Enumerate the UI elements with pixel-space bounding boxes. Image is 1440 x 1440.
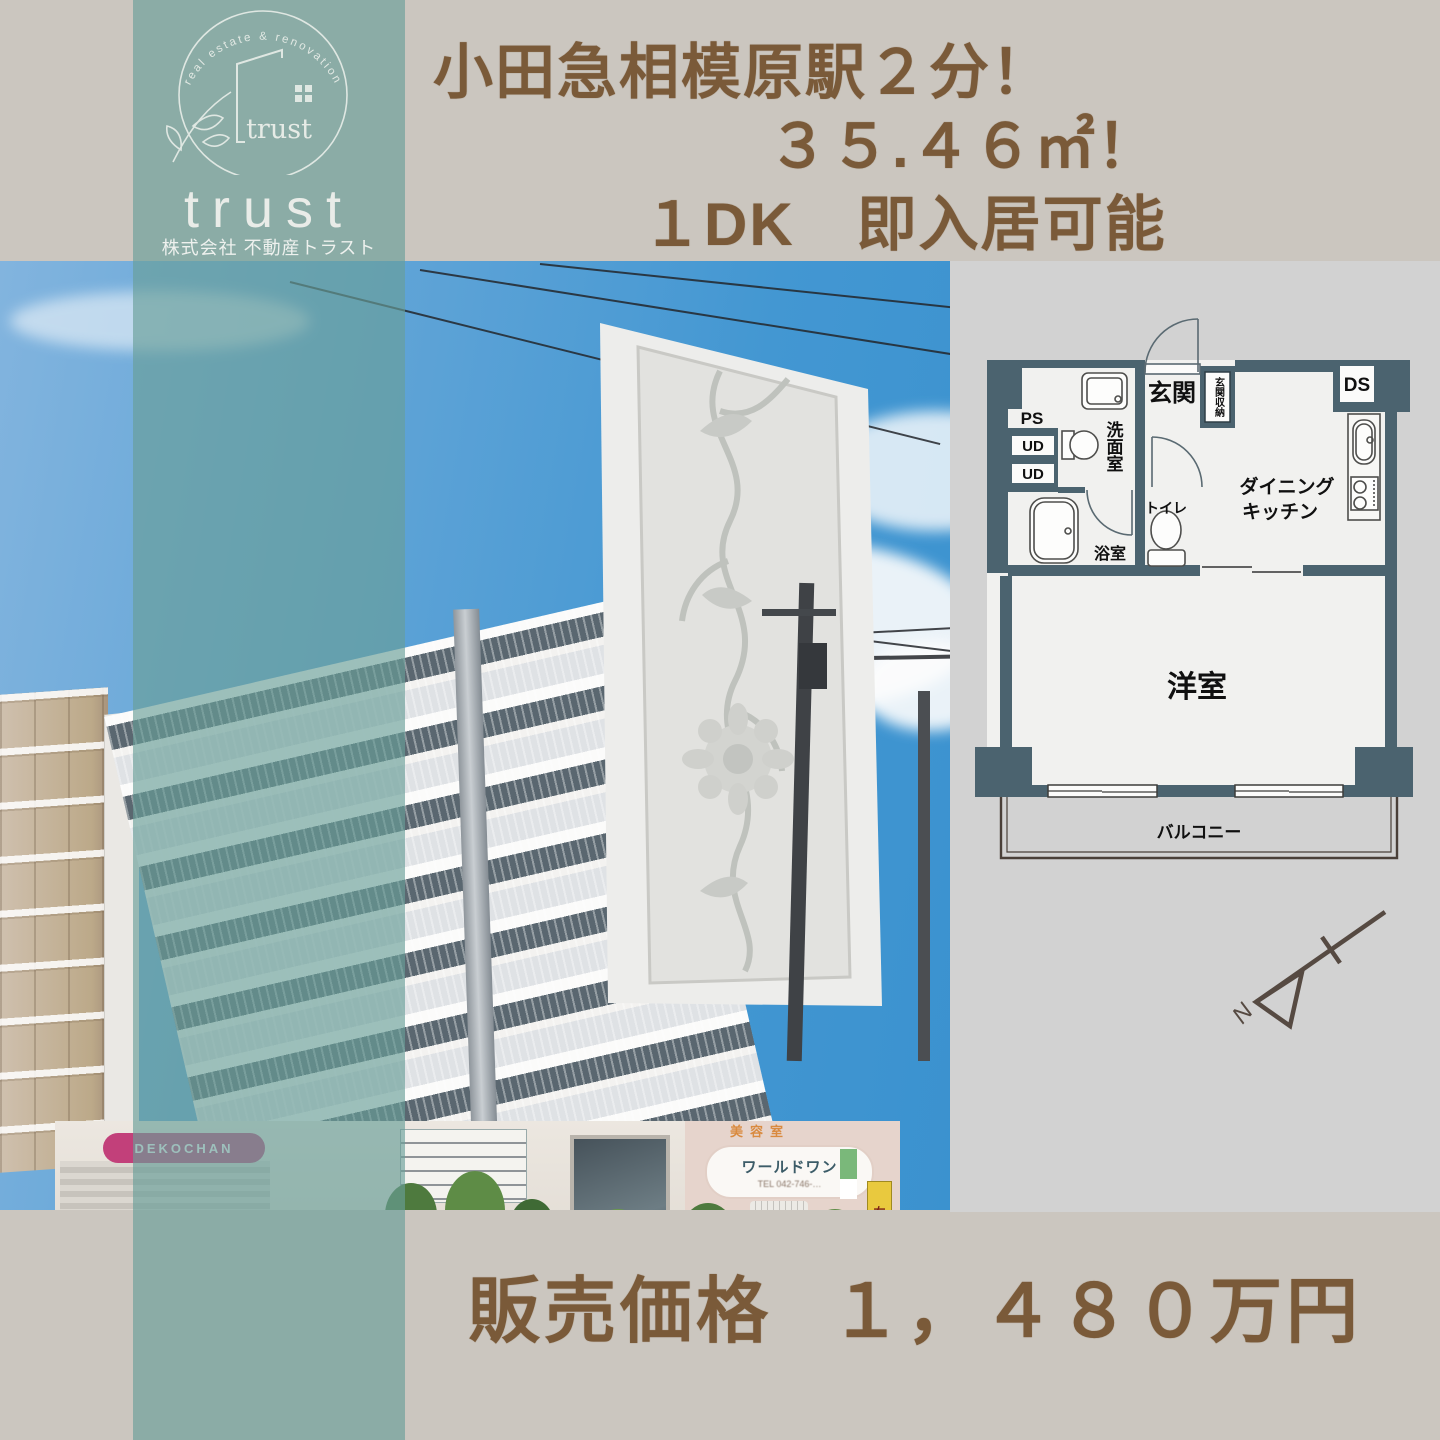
transformer-box xyxy=(799,643,827,689)
price-label: 販売価格 xyxy=(468,1252,772,1357)
ps-label: PS xyxy=(1021,409,1044,428)
bathroom-label: 浴室 xyxy=(1094,544,1126,563)
pole-crossarm xyxy=(762,609,836,616)
green-street-sign xyxy=(840,1149,857,1199)
floor-plan-panel: PS UD UD DS 玄関 玄関収納 洗面室 浴室 トイレ ダイニング キッチ… xyxy=(950,261,1440,1212)
logo-emblem-text: trust xyxy=(246,114,312,145)
leaf-branch-icon xyxy=(167,92,231,162)
washroom-label: 洗面室 xyxy=(1104,420,1124,472)
company-logo: real estate & renovation trust trust 株式会… xyxy=(133,0,405,261)
floor-plan: PS UD UD DS 玄関 玄関収納 洗面室 浴室 トイレ ダイニング キッチ… xyxy=(950,261,1440,1212)
western-room-label: 洋室 xyxy=(1167,670,1227,704)
genkan-storage-label: 玄関収納 xyxy=(1213,376,1225,418)
utility-pole xyxy=(918,691,930,1061)
dining-label: ダイニング xyxy=(1239,475,1334,498)
genkan-label: 玄関 xyxy=(1148,379,1196,407)
window-icon xyxy=(295,85,312,102)
salon-phone: TEL 042-746-… xyxy=(758,1179,822,1189)
north-arrow: N xyxy=(1227,912,1385,1029)
no-right-turn-sign: 右折禁止 xyxy=(867,1181,892,1210)
price-line: 販売価格 １，４８０万円 xyxy=(468,1252,1362,1357)
toilet-label: トイレ xyxy=(1145,500,1187,516)
washbasin xyxy=(1070,431,1098,459)
air-conditioner-unit xyxy=(750,1201,808,1210)
price-value: １，４８０万円 xyxy=(830,1252,1362,1357)
flyer-page: DEKOCHAN 美容室 ワールドワン TEL 042-746-… 右折禁止 xyxy=(0,0,1440,1440)
logo-company-name: 株式会社 不動産トラスト xyxy=(133,234,405,260)
shop-entrance-door xyxy=(570,1135,670,1210)
salon-category-sign: 美容室 xyxy=(730,1121,790,1140)
kitchen-label: キッチン xyxy=(1242,502,1318,523)
headline-layout: １DK 即入居可能 xyxy=(642,176,1167,263)
toilet-tank xyxy=(1148,550,1185,566)
logo-arc-text: real estate & renovation xyxy=(182,31,344,87)
logo-wordmark: trust xyxy=(133,178,405,240)
headline-area: ３５.４６㎡！ xyxy=(768,98,1159,185)
ud-label: UD xyxy=(1022,438,1044,455)
salon-name: ワールドワン xyxy=(741,1156,837,1177)
toilet-bowl xyxy=(1151,511,1181,549)
balcony-label: バルコニー xyxy=(1157,823,1242,842)
ds-label: DS xyxy=(1344,375,1370,396)
logo-emblem: real estate & renovation trust xyxy=(133,0,405,175)
ud-label: UD xyxy=(1022,466,1044,483)
